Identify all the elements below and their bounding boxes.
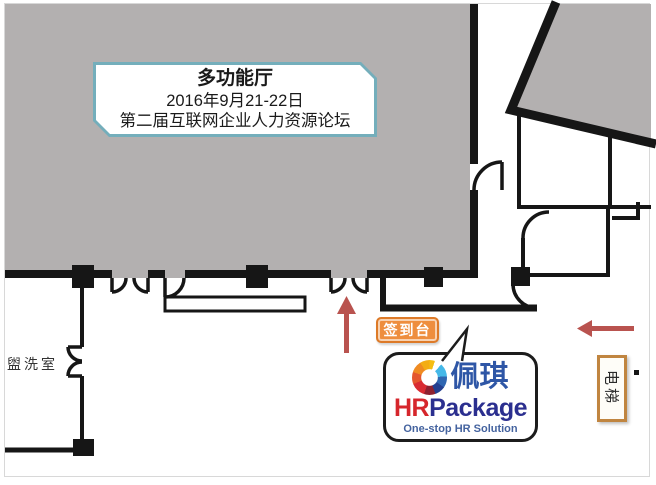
brand-tagline: One-stop HR Solution (403, 424, 517, 435)
arrow-left-icon (590, 326, 634, 331)
door-arc (353, 278, 367, 292)
column-marker (424, 267, 443, 287)
hall-title: 多功能厅 (197, 67, 273, 91)
vestibule-outline (165, 297, 305, 311)
logo-speech-bubble: 佩琪 HRPackage One-stop HR Solution (383, 352, 538, 442)
brand-hr: HR (394, 394, 429, 422)
brand-row: 佩琪 (412, 360, 508, 395)
floor-plan-page: 多功能厅 2016年9月21-22日 第二届互联网企业人力资源论坛 盥洗室 签到… (0, 0, 656, 485)
plan-dot (634, 370, 639, 375)
brand-name-cn: 佩琪 (450, 363, 508, 392)
logo-ring-icon (412, 360, 447, 395)
hall-label-box-inner: 多功能厅 2016年9月21-22日 第二届互联网企业人力资源论坛 (96, 65, 374, 134)
door-arc (134, 278, 148, 292)
hall-event: 第二届互联网企业人力资源论坛 (120, 111, 351, 132)
arrow-up-icon (344, 312, 349, 353)
door-arc (112, 278, 126, 292)
washroom-label: 盥洗室 (7, 354, 58, 374)
multifunction-hall-area (5, 4, 470, 278)
door-arc (523, 212, 549, 238)
brand-package: Package (429, 394, 527, 422)
door-arc (513, 284, 537, 308)
hall-label-box: 多功能厅 2016年9月21-22日 第二届互联网企业人力资源论坛 (93, 62, 377, 137)
elevator-sign: 电梯 (597, 355, 627, 422)
door-arc (68, 347, 82, 361)
door-arc (68, 362, 82, 376)
door-arc (165, 278, 184, 297)
column-marker (72, 265, 94, 288)
column-marker (73, 439, 94, 456)
elevator-label: 电梯 (602, 370, 623, 406)
hall-date: 2016年9月21-22日 (166, 91, 304, 112)
speech-bubble-tail (428, 320, 476, 362)
door-arc (331, 278, 345, 292)
brand-name-en: HRPackage (394, 396, 527, 421)
arrow-up-icon (337, 296, 356, 314)
arrow-left-icon (577, 320, 592, 337)
column-marker (511, 267, 530, 286)
door-arc (474, 162, 502, 190)
column-marker (246, 265, 268, 288)
columns-group (72, 265, 639, 456)
